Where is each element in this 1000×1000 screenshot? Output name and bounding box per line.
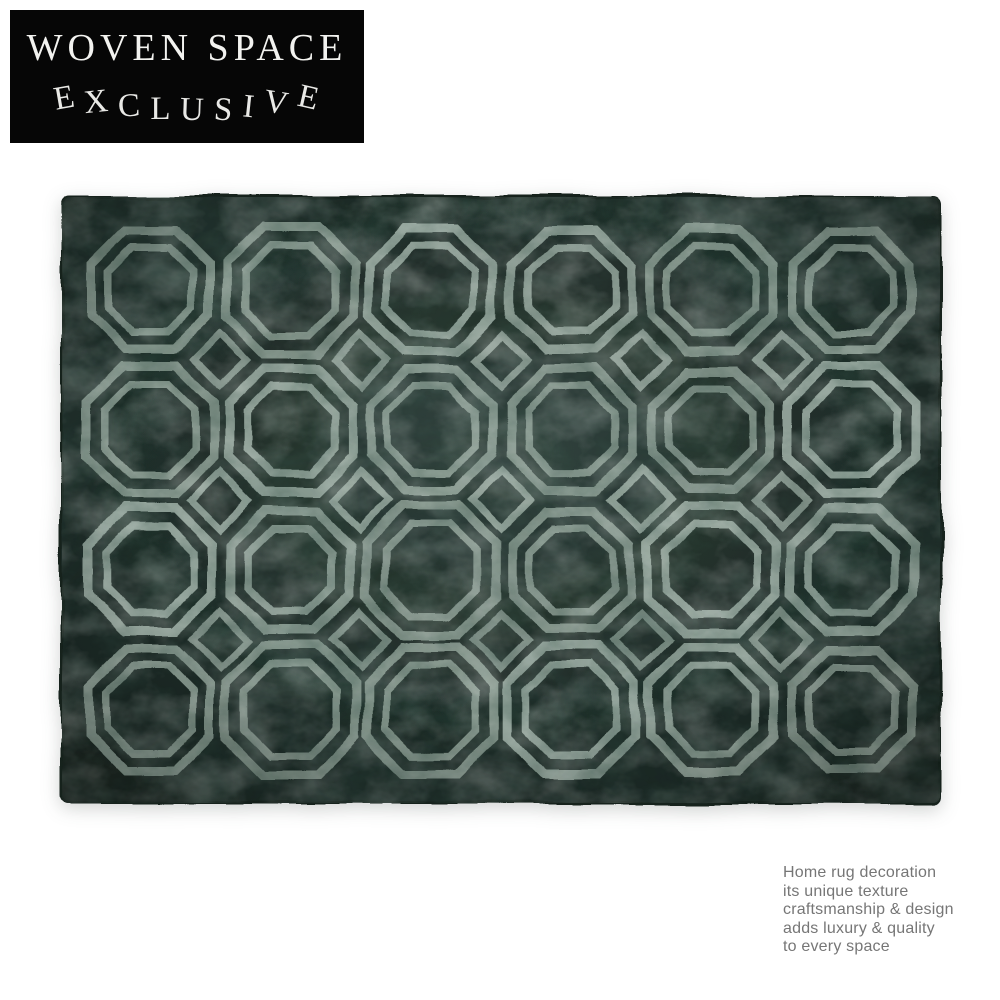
- product-description: Home rug decoration its unique texture c…: [783, 864, 993, 957]
- rug-texture: [62, 197, 940, 803]
- rug-image: [0, 0, 1000, 1000]
- description-line: to every space: [783, 938, 993, 957]
- description-line: craftsmanship & design: [783, 901, 993, 920]
- brand-banner: WOVEN SPACE EXCLUSIVE: [10, 10, 364, 143]
- product-image: WOVEN SPACE EXCLUSIVE Home rug decoratio…: [0, 0, 1000, 1000]
- brand-tagline: EXCLUSIVE: [50, 80, 323, 117]
- description-line: adds luxury & quality: [783, 920, 993, 939]
- description-line: its unique texture: [783, 883, 993, 902]
- brand-name: WOVEN SPACE: [27, 26, 348, 70]
- description-line: Home rug decoration: [783, 864, 993, 883]
